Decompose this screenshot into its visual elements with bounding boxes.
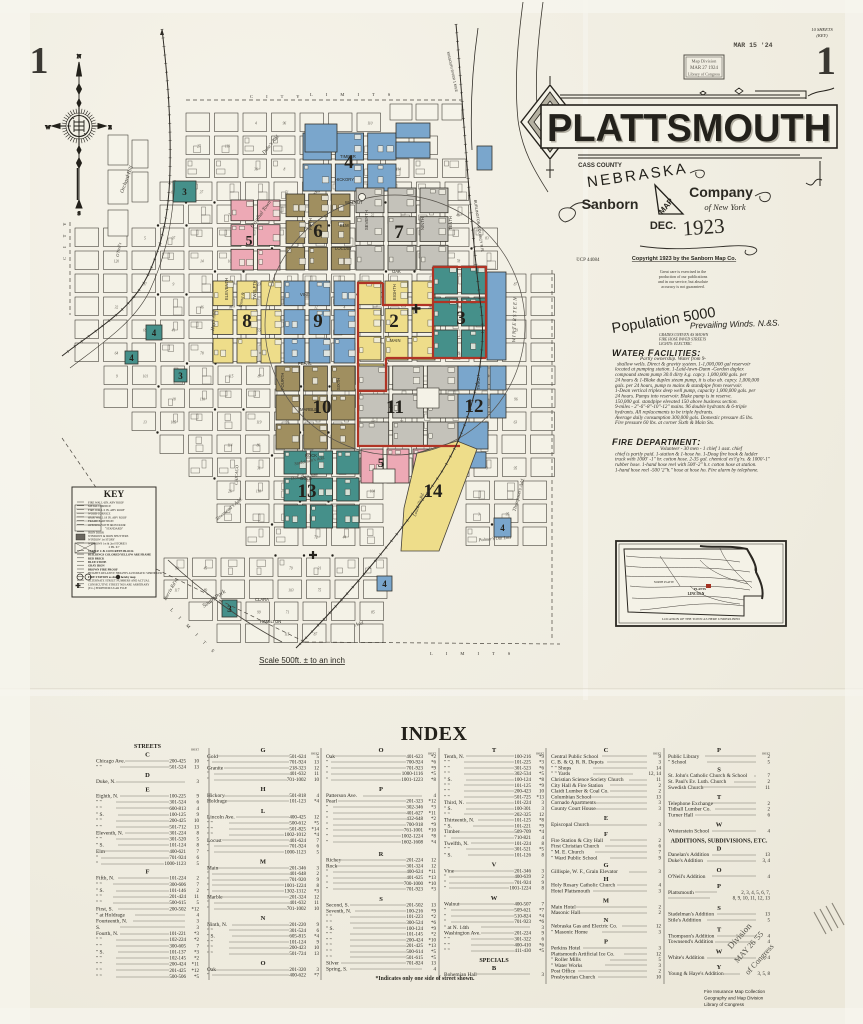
svg-text:101-125: 101-125 (514, 784, 531, 789)
svg-text:118: 118 (256, 490, 261, 494)
svg-text:119: 119 (225, 145, 230, 149)
svg-text:401-632: 401-632 (289, 901, 306, 906)
svg-text:201-346: 201-346 (289, 866, 306, 871)
svg-text:1001-1224: 1001-1224 (509, 887, 531, 892)
svg-text:13: 13 (194, 825, 200, 830)
svg-text:accuracy is not guaranteed.: accuracy is not guaranteed. (661, 284, 705, 289)
svg-text:710-821: 710-821 (514, 836, 531, 841)
svg-text:301-524: 301-524 (289, 929, 306, 934)
svg-text:100-216: 100-216 (514, 755, 531, 760)
svg-text:C: C (145, 751, 150, 758)
svg-text:Fourth, N.: Fourth, N. (96, 931, 118, 937)
svg-text:*3: *3 (539, 761, 545, 766)
svg-text:MAIN: MAIN (390, 338, 400, 343)
svg-text:600-813: 600-813 (169, 807, 186, 812)
svg-text:Duke's Addition: Duke's Addition (668, 858, 703, 864)
svg-text:1000-1116: 1000-1116 (402, 772, 424, 777)
svg-text:4: 4 (500, 523, 505, 533)
svg-text:*3: *3 (431, 806, 437, 811)
svg-text:T: T (717, 927, 722, 934)
svg-text:86: 86 (257, 444, 261, 448)
svg-text:*13: *13 (429, 876, 437, 881)
svg-text:*9: *9 (431, 823, 437, 828)
svg-text:12: 12 (314, 766, 320, 771)
svg-text:of New York: of New York (704, 202, 745, 212)
svg-text:FIRE HOSE PAVED STREETS: FIRE HOSE PAVED STREETS (658, 338, 706, 342)
svg-text:“STANDARD”: “STANDARD” (105, 527, 124, 531)
svg-text:114: 114 (227, 444, 232, 448)
svg-text:12: 12 (539, 813, 545, 818)
svg-text:" S.: " S. (96, 812, 104, 818)
svg-text:*2: *2 (194, 957, 200, 962)
svg-text:Townsend's Addition: Townsend's Addition (668, 939, 714, 945)
svg-text:8, 9, 10, 11, 12, 13: 8, 9, 10, 11, 12, 13 (733, 897, 771, 902)
svg-text:102-224: 102-224 (169, 938, 186, 943)
svg-text:O: O (260, 960, 265, 967)
svg-text:GRADES UNEVEN AS SHOWN: GRADES UNEVEN AS SHOWN (659, 333, 709, 337)
svg-text:509-709: 509-709 (514, 830, 531, 835)
svg-text:114: 114 (396, 168, 401, 172)
svg-text:501-615: 501-615 (406, 956, 423, 961)
svg-text:201-502: 201-502 (406, 904, 423, 909)
svg-text:9: 9 (116, 375, 118, 379)
svg-text:13: 13 (314, 761, 320, 766)
svg-text:105: 105 (171, 421, 177, 425)
svg-text:401-632: 401-632 (289, 772, 306, 777)
svg-text:*3: *3 (194, 950, 200, 955)
svg-text:*2: *2 (194, 938, 200, 943)
svg-text:400-639: 400-639 (514, 875, 531, 880)
svg-text:301-224: 301-224 (169, 831, 186, 836)
svg-text:101-224: 101-224 (514, 842, 531, 847)
svg-text:701-923: 701-923 (406, 766, 423, 771)
svg-text:100-124: 100-124 (514, 778, 531, 783)
svg-text:101: 101 (143, 375, 149, 379)
svg-text:": " (96, 861, 98, 867)
svg-text:10: 10 (314, 778, 320, 783)
svg-text:301-524: 301-524 (169, 801, 186, 806)
svg-text:Masonic Hall: Masonic Hall (551, 910, 581, 916)
svg-text:MAR 27 1924: MAR 27 1924 (690, 66, 718, 71)
svg-text:9: 9 (173, 283, 175, 287)
svg-text:Company: Company (689, 184, 753, 200)
svg-text:L: L (261, 808, 266, 815)
svg-text:78: 78 (457, 260, 461, 264)
svg-text:Eighth, N.: Eighth, N. (96, 794, 118, 800)
svg-text:501-624: 501-624 (289, 755, 306, 760)
svg-text:" ": " " (207, 951, 213, 957)
svg-text:12: 12 (314, 895, 320, 900)
svg-text:101-224: 101-224 (514, 801, 531, 806)
svg-text:*5: *5 (539, 949, 545, 954)
svg-text:(E.L.) PERPENDICULAR FLUE: (E.L.) PERPENDICULAR FLUE (88, 586, 127, 590)
svg-text:HICKORY: HICKORY (335, 177, 354, 182)
svg-text:E: E (604, 815, 608, 822)
svg-text:" ": " " (96, 937, 102, 943)
svg-text:T: T (717, 794, 722, 801)
svg-text:" ": " " (444, 948, 450, 954)
svg-text:": " (444, 886, 446, 892)
svg-text:*4: *4 (314, 833, 320, 838)
svg-text:Swedish Church: Swedish Church (668, 785, 704, 791)
svg-text:96: 96 (283, 122, 287, 126)
svg-text:Turner Hall: Turner Hall (668, 812, 694, 818)
svg-text:400-410: 400-410 (514, 943, 531, 948)
svg-text:11: 11 (765, 786, 770, 791)
svg-text:101-123: 101-123 (289, 800, 306, 805)
svg-text:201-324: 201-324 (289, 895, 306, 900)
svg-text:400-624: 400-624 (406, 870, 423, 875)
svg-text:501-825: 501-825 (289, 827, 306, 832)
svg-text:97: 97 (172, 237, 176, 241)
svg-text:*9: *9 (431, 766, 437, 771)
svg-text:12: 12 (465, 396, 484, 417)
svg-text:*2: *2 (431, 755, 437, 760)
svg-text:8: 8 (242, 311, 252, 332)
svg-text:9: 9 (313, 311, 323, 332)
svg-text:102-145: 102-145 (169, 957, 186, 962)
svg-text:13: 13 (656, 795, 662, 800)
svg-text:" ": " " (96, 818, 102, 824)
svg-text:Fifth, N.: Fifth, N. (96, 875, 114, 882)
svg-text:1: 1 (30, 40, 49, 82)
svg-text:10: 10 (314, 907, 320, 912)
svg-text:12: 12 (431, 864, 437, 869)
svg-text:*14: *14 (312, 827, 320, 832)
svg-text:300-605: 300-605 (169, 944, 186, 949)
svg-text:1002-1224: 1002-1224 (401, 835, 423, 840)
svg-text:46: 46 (200, 306, 204, 310)
svg-text:N: N (77, 54, 81, 60)
svg-text:S: S (77, 211, 80, 217)
svg-text:": " (96, 855, 98, 861)
svg-text:104: 104 (370, 490, 376, 494)
svg-text:Map Division: Map Division (692, 59, 718, 64)
svg-text:101-225: 101-225 (514, 761, 531, 766)
svg-text:ELEVENTH: ELEVENTH (224, 278, 229, 300)
svg-text:F: F (604, 831, 608, 838)
svg-text:*9: *9 (539, 824, 545, 829)
svg-text:3: 3 (178, 371, 183, 381)
svg-text:110: 110 (367, 122, 372, 126)
svg-text:NINTH: NINTH (420, 217, 425, 230)
svg-text:Scale 500ft. ± to an inch: Scale 500ft. ± to an inch (259, 656, 345, 665)
svg-text:" ": " " (96, 824, 102, 830)
svg-text:TWELFTH: TWELFTH (252, 280, 257, 300)
svg-text:432-648: 432-648 (406, 817, 423, 822)
svg-text:200-425: 200-425 (169, 819, 186, 824)
svg-text:500-614: 500-614 (406, 950, 423, 955)
svg-text:NORTH PLATTE: NORTH PLATTE (654, 581, 675, 584)
svg-text:V: V (492, 862, 497, 869)
svg-text:*8: *8 (539, 778, 545, 783)
svg-text:500-615: 500-615 (169, 901, 186, 906)
svg-text:501-725: 501-725 (514, 795, 531, 800)
svg-text:SIXTH: SIXTH (336, 378, 341, 390)
svg-text:" S.: " S. (444, 852, 452, 858)
svg-text:200-424: 200-424 (169, 963, 186, 968)
svg-text:White's Addition: White's Addition (668, 955, 705, 961)
svg-text:101-137: 101-137 (169, 950, 186, 955)
svg-text:32: 32 (115, 306, 119, 310)
svg-text:C I T Y: C I T Y (250, 94, 306, 99)
svg-text:" ": " " (96, 956, 102, 962)
svg-text:401-624: 401-624 (289, 839, 306, 844)
svg-text:100-124: 100-124 (406, 927, 423, 932)
svg-text:*10: *10 (429, 829, 437, 834)
svg-text:500-612: 500-612 (289, 822, 306, 827)
svg-text:*4: *4 (314, 935, 320, 940)
svg-text:D: D (145, 772, 150, 779)
svg-text:115: 115 (228, 375, 233, 379)
svg-text:W: W (45, 125, 51, 131)
svg-text:*8: *8 (539, 819, 545, 824)
svg-text:E: E (145, 786, 149, 793)
svg-text:Fire pressure 60 lbs. at corne: Fire pressure 60 lbs. at corner Sixth & … (614, 420, 714, 426)
svg-text:PLATTS: PLATTS (694, 587, 706, 591)
svg-text:300-606: 300-606 (169, 883, 186, 888)
svg-text:Episcopal Church: Episcopal Church (551, 822, 590, 828)
svg-text:" Ward Public School: " Ward Public School (551, 855, 598, 861)
svg-text:EIGHTH: EIGHTH (392, 284, 397, 300)
svg-text:" ": " " (96, 806, 102, 812)
svg-text:W: W (716, 948, 723, 955)
svg-text:13: 13 (298, 481, 317, 502)
svg-text:201-346: 201-346 (514, 869, 531, 874)
svg-text:12: 12 (314, 816, 320, 821)
svg-text:LINCOLN: LINCOLN (688, 592, 705, 596)
svg-text:VINE: VINE (300, 292, 310, 297)
svg-text:O: O (378, 747, 383, 754)
svg-text:INDEX: INDEX (401, 723, 468, 745)
svg-text:302-346: 302-346 (406, 806, 423, 811)
svg-text:1-hand hose reel -500 '2"h." h: 1-hand hose reel -500 '2"h." hose at hos… (615, 467, 759, 473)
svg-text:10: 10 (194, 760, 200, 765)
svg-text:W: W (491, 895, 498, 902)
svg-text:S: S (717, 905, 721, 912)
svg-text:71: 71 (286, 611, 290, 615)
svg-text:*12: *12 (192, 907, 200, 912)
svg-text:*13: *13 (429, 944, 437, 949)
svg-text:4: 4 (129, 353, 134, 363)
svg-text:11: 11 (656, 778, 661, 783)
svg-text:FIFTH: FIFTH (308, 218, 313, 230)
svg-text:100-216: 100-216 (406, 909, 423, 914)
svg-text:Timber: Timber (444, 829, 460, 835)
svg-text:103: 103 (288, 589, 294, 593)
svg-text:*12: *12 (192, 969, 200, 974)
svg-text:P: P (717, 747, 721, 754)
svg-text:*5: *5 (194, 975, 200, 980)
svg-text:*6: *6 (539, 920, 545, 925)
svg-text:Sanborn: Sanborn (582, 196, 639, 212)
svg-text:Winterstein School: Winterstein School (668, 828, 710, 834)
svg-text:C: C (604, 747, 609, 754)
svg-text:PLATTSMOUTH: PLATTSMOUTH (547, 107, 831, 150)
svg-text:M: M (260, 859, 266, 866)
svg-text:6: 6 (313, 221, 323, 242)
svg-text:5: 5 (246, 234, 253, 249)
svg-text:*9: *9 (431, 909, 437, 914)
svg-text:501-818: 501-818 (289, 794, 306, 799)
svg-text:7: 7 (394, 222, 404, 243)
svg-text:13: 13 (431, 904, 437, 909)
svg-text:12: 12 (431, 859, 437, 864)
svg-text:101-125: 101-125 (514, 819, 531, 824)
svg-text:401-625: 401-625 (406, 876, 423, 881)
svg-text:101-124: 101-124 (169, 844, 186, 849)
svg-text:115: 115 (284, 633, 289, 637)
svg-text:*Indicates only one side of st: *Indicates only one side of street shown… (376, 976, 475, 982)
svg-text:301-520: 301-520 (169, 838, 186, 843)
svg-text:1302-1312: 1302-1312 (284, 890, 306, 895)
svg-text:10 SHEETS: 10 SHEETS (811, 27, 833, 32)
svg-text:201-220: 201-220 (289, 923, 306, 928)
svg-text:SPECIALS: SPECIALS (479, 958, 509, 964)
svg-text:31: 31 (318, 567, 322, 571)
svg-text:201-224: 201-224 (406, 859, 423, 864)
svg-text:701-923: 701-923 (514, 920, 531, 925)
svg-text:302-534: 302-534 (514, 772, 531, 777)
svg-text:Spring, S.: Spring, S. (326, 966, 347, 972)
svg-text:12: 12 (656, 952, 662, 957)
svg-text:Eleventh, N.: Eleventh, N. (96, 830, 123, 836)
svg-text:13: 13 (765, 913, 771, 918)
svg-text:First, S.: First, S. (96, 906, 113, 912)
svg-text:OAK: OAK (392, 269, 401, 274)
svg-text:701-1002: 701-1002 (287, 907, 307, 912)
svg-text:95: 95 (506, 513, 510, 517)
svg-text:55: 55 (257, 329, 261, 333)
svg-text:14: 14 (656, 766, 662, 771)
svg-text:13: 13 (194, 766, 200, 771)
svg-text:" ": " " (96, 974, 102, 980)
svg-text:3, 4: 3, 4 (763, 859, 771, 864)
svg-text:10: 10 (314, 946, 320, 951)
svg-text:HAMILTON: HAMILTON (260, 619, 281, 624)
svg-text:12: 12 (656, 925, 662, 930)
svg-text:" S.: " S. (96, 949, 104, 955)
svg-text:LOCATION OF THE TOWN AS HERE U: LOCATION OF THE TOWN AS HERE UNDERLINED (662, 617, 740, 621)
svg-text:101-221: 101-221 (514, 824, 531, 829)
svg-text:46: 46 (456, 214, 460, 218)
svg-text:201-425: 201-425 (169, 969, 186, 974)
svg-text:*9: *9 (431, 927, 437, 932)
svg-text:44: 44 (343, 536, 347, 540)
svg-text:401-648: 401-648 (289, 872, 306, 877)
svg-text:87: 87 (314, 633, 318, 637)
svg-text:72: 72 (314, 536, 318, 540)
svg-text:400-622: 400-622 (289, 974, 306, 979)
svg-text:H: H (260, 786, 265, 793)
svg-text:700-918: 700-918 (406, 823, 423, 828)
svg-text:3: 3 (456, 308, 466, 329)
svg-text:Fire Insurance Map Collection: Fire Insurance Map Collection (704, 989, 765, 994)
svg-text:": " (326, 839, 328, 845)
svg-text:PEARL: PEARL (298, 361, 312, 366)
svg-text:" ": " " (96, 882, 102, 888)
svg-text:100-301: 100-301 (514, 807, 531, 812)
svg-text:G: G (260, 747, 265, 754)
svg-text:LOCUST: LOCUST (335, 246, 352, 251)
svg-text:MAR 15 '24: MAR 15 '24 (733, 42, 772, 49)
svg-text:LIGHTS: ELECTRIC: LIGHTS: ELECTRIC (658, 342, 692, 346)
svg-text:14: 14 (200, 260, 204, 264)
svg-text:*5: *5 (431, 956, 437, 961)
svg-text:W: W (716, 822, 723, 829)
svg-text:95: 95 (514, 467, 518, 471)
svg-text:STREETS: STREETS (134, 744, 162, 750)
svg-text:*9: *9 (539, 755, 545, 760)
svg-text:Fourteenth, N.: Fourteenth, N. (96, 919, 127, 925)
svg-text:761-1001: 761-1001 (404, 829, 424, 834)
svg-text:*7: *7 (539, 909, 545, 914)
svg-text:Library of Congress: Library of Congress (704, 1002, 745, 1007)
svg-text:99: 99 (257, 611, 261, 615)
svg-text:63: 63 (514, 421, 518, 425)
svg-text:*8: *8 (431, 778, 437, 783)
svg-text:701-924: 701-924 (169, 856, 186, 861)
svg-text:" S.: " S. (96, 843, 104, 849)
svg-text:120: 120 (114, 260, 120, 264)
svg-text:O: O (716, 867, 721, 874)
svg-text:" School: " School (668, 760, 687, 766)
svg-text:*12: *12 (429, 800, 437, 805)
svg-text:10: 10 (194, 819, 200, 824)
svg-text:*10: *10 (429, 938, 437, 943)
svg-text:501-712: 501-712 (169, 825, 186, 830)
svg-text:301-322: 301-322 (514, 938, 531, 943)
svg-text:*8: *8 (431, 835, 437, 840)
svg-text:605-815: 605-815 (289, 935, 306, 940)
svg-text:Hotel Plattsmouth: Hotel Plattsmouth (551, 888, 590, 894)
svg-text:117: 117 (174, 589, 179, 593)
svg-text:THIRD: THIRD (476, 377, 481, 390)
svg-text:Young & Haye's Addition: Young & Haye's Addition (668, 971, 724, 977)
svg-text:87: 87 (514, 283, 518, 287)
svg-text:100-225: 100-225 (169, 795, 186, 800)
svg-text:119: 119 (256, 421, 261, 425)
svg-text:13: 13 (314, 952, 320, 957)
svg-text:101-223: 101-223 (406, 915, 423, 920)
svg-text:27: 27 (197, 145, 201, 149)
svg-text:" ": " " (96, 900, 102, 906)
svg-text:S.: S. (96, 925, 100, 931)
svg-text:13: 13 (431, 962, 437, 967)
svg-text:*5: *5 (431, 772, 437, 777)
svg-text:510-824: 510-824 (514, 914, 531, 919)
svg-text:701-924: 701-924 (289, 845, 306, 850)
svg-text:KEY: KEY (104, 490, 125, 500)
svg-text:301-523: 301-523 (514, 766, 531, 771)
svg-text:" ": " " (96, 765, 102, 771)
svg-text:TIMBER: TIMBER (340, 154, 356, 159)
svg-text:L I M I T S: L I M I T S (430, 651, 516, 656)
svg-text:Chicago Ave.: Chicago Ave. (96, 759, 125, 765)
svg-text:5: 5 (378, 455, 385, 470)
svg-text:218-323: 218-323 (289, 766, 306, 771)
svg-text:201-424: 201-424 (169, 895, 186, 900)
svg-text:202-325: 202-325 (514, 813, 531, 818)
svg-text:FOURTH: FOURTH (280, 373, 285, 390)
svg-text:*3: *3 (194, 932, 200, 937)
svg-text:Presbyterian Church: Presbyterian Church (551, 975, 595, 981)
svg-text:County Court House: County Court House (551, 806, 596, 812)
svg-text:DEC.: DEC. (650, 220, 676, 232)
svg-text:87: 87 (258, 375, 262, 379)
svg-text:4: 4 (382, 579, 387, 589)
svg-text:Plattsmouth: Plattsmouth (668, 890, 694, 896)
